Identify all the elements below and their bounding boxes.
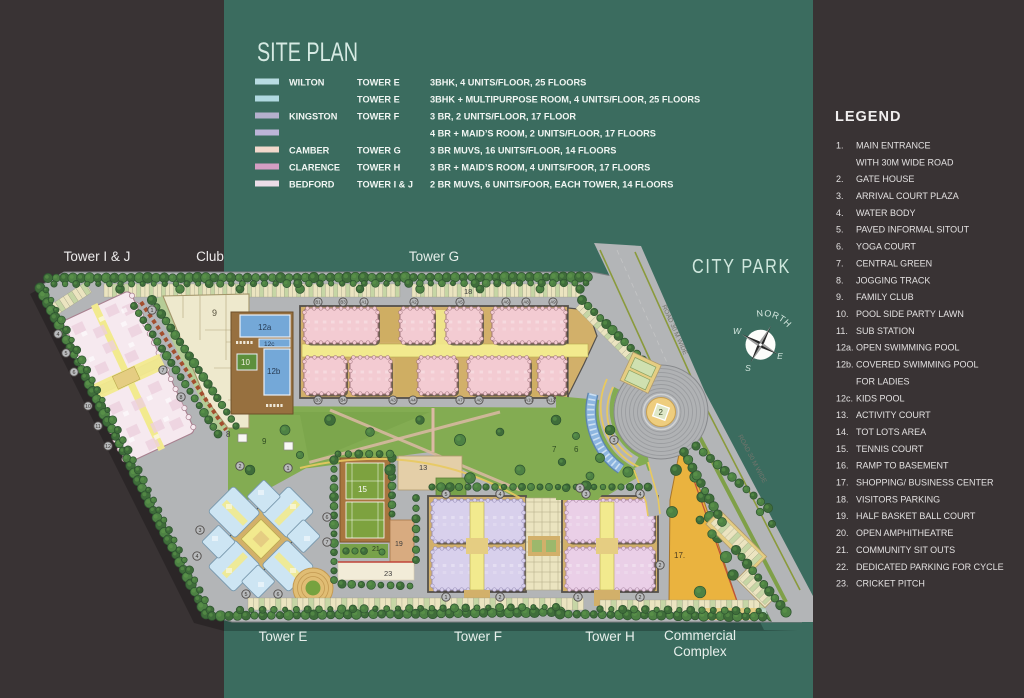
svg-text:11: 11 — [95, 424, 101, 430]
svg-text:B4: B4 — [340, 398, 346, 403]
svg-text:3: 3 — [199, 528, 202, 534]
svg-text:TOWER E: TOWER E — [357, 78, 400, 88]
svg-text:3 BR MUVS, 16 UNITS/FLOOR, 14: 3 BR MUVS, 16 UNITS/FLOOR, 14 FLOORS — [430, 146, 616, 156]
svg-text:COVERED SWIMMING POOL: COVERED SWIMMING POOL — [856, 360, 979, 370]
svg-text:WILTON: WILTON — [289, 78, 325, 88]
svg-text:S: S — [745, 363, 751, 373]
svg-text:LEGEND: LEGEND — [835, 109, 901, 125]
svg-text:6.: 6. — [836, 242, 844, 252]
svg-text:Complex: Complex — [673, 644, 727, 659]
svg-text:4: 4 — [57, 332, 60, 338]
svg-text:9: 9 — [212, 308, 217, 318]
svg-text:B3: B3 — [315, 398, 321, 403]
svg-text:OPEN AMPHITHEATRE: OPEN AMPHITHEATRE — [856, 528, 953, 538]
svg-text:17.: 17. — [674, 551, 685, 560]
svg-text:4: 4 — [196, 554, 199, 560]
svg-text:TOT LOTS AREA: TOT LOTS AREA — [856, 427, 926, 437]
svg-text:20.: 20. — [836, 528, 849, 538]
svg-text:3.: 3. — [836, 191, 844, 201]
svg-text:A5: A5 — [457, 300, 463, 305]
svg-text:11.: 11. — [836, 326, 848, 336]
svg-text:TOWER F: TOWER F — [357, 112, 400, 122]
svg-text:Tower E: Tower E — [259, 629, 308, 644]
svg-text:4 BR + MAID’S ROOM, 2 UNITS/FL: 4 BR + MAID’S ROOM, 2 UNITS/FLOOR, 17 FL… — [430, 129, 656, 139]
svg-text:PAVED INFORMAL SITOUT: PAVED INFORMAL SITOUT — [856, 225, 970, 235]
svg-text:17.: 17. — [836, 478, 849, 488]
svg-text:2 BR MUVS, 6 UNITS/FOOR, EACH: 2 BR MUVS, 6 UNITS/FOOR, EACH TOWER, 14 … — [430, 180, 673, 190]
svg-text:A6: A6 — [503, 300, 509, 305]
svg-text:Tower I & J: Tower I & J — [64, 249, 131, 264]
svg-text:B3: B3 — [340, 300, 346, 305]
svg-text:FOR LADIES: FOR LADIES — [856, 376, 910, 386]
svg-text:OPEN SWIMMING POOL: OPEN SWIMMING POOL — [856, 343, 960, 353]
svg-text:5.: 5. — [836, 225, 844, 235]
svg-text:A7: A7 — [457, 398, 463, 403]
svg-text:W: W — [733, 326, 742, 336]
svg-text:HALF BASKET BALL COURT: HALF BASKET BALL COURT — [856, 511, 976, 521]
svg-text:16.: 16. — [836, 461, 849, 471]
svg-text:19.: 19. — [836, 511, 849, 521]
svg-text:A8: A8 — [523, 300, 529, 305]
svg-text:A4: A4 — [410, 398, 416, 403]
svg-text:15: 15 — [358, 485, 367, 494]
svg-text:TOWER E: TOWER E — [357, 95, 400, 105]
svg-text:KIDS POOL: KIDS POOL — [856, 393, 905, 403]
svg-text:ARRIVAL COURT PLAZA: ARRIVAL COURT PLAZA — [856, 191, 959, 201]
svg-text:21.: 21. — [836, 545, 849, 555]
svg-text:CENTRAL GREEN: CENTRAL GREEN — [856, 258, 932, 268]
svg-text:SHOPPING/ BUSINESS CENTER: SHOPPING/ BUSINESS CENTER — [856, 478, 994, 488]
svg-text:CITY PARK: CITY PARK — [692, 256, 791, 278]
svg-text:3 BR, 2 UNITS/FLOOR, 17 FLOOR: 3 BR, 2 UNITS/FLOOR, 17 FLOOR — [430, 112, 576, 122]
svg-text:19: 19 — [395, 541, 403, 548]
svg-text:SITE PLAN: SITE PLAN — [257, 37, 358, 67]
svg-text:6: 6 — [326, 515, 329, 521]
svg-text:2: 2 — [639, 595, 642, 601]
svg-text:3BHK, 4 UNITS/FLOOR, 25 FLOORS: 3BHK, 4 UNITS/FLOOR, 25 FLOORS — [430, 78, 586, 88]
svg-text:3BHK + MULTIPURPOSE ROOM, 4 UN: 3BHK + MULTIPURPOSE ROOM, 4 UNITS/FLOOR,… — [430, 95, 700, 105]
svg-text:23.: 23. — [836, 579, 849, 589]
svg-text:4.: 4. — [836, 208, 844, 218]
svg-text:KINGSTON: KINGSTON — [289, 112, 338, 122]
svg-text:7: 7 — [162, 368, 165, 374]
svg-text:MAIN ENTRANCE: MAIN ENTRANCE — [856, 141, 931, 151]
svg-text:2: 2 — [239, 464, 242, 470]
svg-text:9: 9 — [262, 437, 267, 446]
svg-text:TOWER G: TOWER G — [357, 146, 401, 156]
svg-text:5: 5 — [245, 592, 248, 598]
svg-text:BEDFORD: BEDFORD — [289, 180, 335, 190]
svg-text:2: 2 — [659, 563, 662, 569]
svg-text:3: 3 — [585, 492, 588, 498]
svg-text:TOWER I & J: TOWER I & J — [357, 180, 413, 190]
svg-text:12b.: 12b. — [836, 360, 854, 370]
svg-text:18.: 18. — [836, 494, 849, 504]
svg-text:COMMUNITY SIT OUTS: COMMUNITY SIT OUTS — [856, 545, 955, 555]
svg-text:18: 18 — [464, 287, 472, 296]
svg-text:CRICKET PITCH: CRICKET PITCH — [856, 579, 925, 589]
svg-text:2.: 2. — [836, 174, 844, 184]
svg-text:8: 8 — [226, 430, 231, 439]
svg-text:6: 6 — [277, 592, 280, 598]
svg-text:CAMBER: CAMBER — [289, 146, 330, 156]
svg-text:12a: 12a — [258, 323, 272, 332]
svg-text:A10: A10 — [525, 398, 533, 403]
svg-text:4: 4 — [639, 492, 642, 498]
svg-text:3 BR + MAID’S ROOM, 4 UNITS/FO: 3 BR + MAID’S ROOM, 4 UNITS/FOOR, 17 FLO… — [430, 163, 650, 173]
svg-text:9: 9 — [579, 486, 582, 492]
svg-text:Tower H: Tower H — [585, 629, 635, 644]
svg-text:6: 6 — [574, 445, 579, 454]
svg-text:A2: A2 — [411, 300, 417, 305]
svg-text:22.: 22. — [836, 562, 849, 572]
svg-text:13: 13 — [419, 463, 427, 472]
svg-text:3: 3 — [613, 438, 616, 444]
svg-text:10: 10 — [85, 404, 91, 410]
svg-text:A8: A8 — [476, 398, 482, 403]
svg-text:1.: 1. — [836, 141, 844, 151]
svg-text:13.: 13. — [836, 410, 849, 420]
svg-text:JOGGING TRACK: JOGGING TRACK — [856, 275, 930, 285]
svg-text:10.: 10. — [836, 309, 849, 319]
svg-text:1: 1 — [445, 595, 448, 601]
svg-text:A9: A9 — [550, 300, 556, 305]
svg-text:15.: 15. — [836, 444, 849, 454]
svg-text:1: 1 — [287, 466, 290, 472]
svg-text:RAMP TO BASEMENT: RAMP TO BASEMENT — [856, 461, 949, 471]
svg-text:ACTIVITY COURT: ACTIVITY COURT — [856, 410, 931, 420]
svg-text:POOL SIDE PARTY LAWN: POOL SIDE PARTY LAWN — [856, 309, 964, 319]
svg-text:A1: A1 — [361, 300, 367, 305]
svg-text:8: 8 — [180, 395, 183, 401]
svg-text:1: 1 — [577, 595, 580, 601]
svg-text:Tower G: Tower G — [409, 249, 459, 264]
svg-text:DEDICATED PARKING FOR CYCLE: DEDICATED PARKING FOR CYCLE — [856, 562, 1004, 572]
svg-text:WATER BODY: WATER BODY — [856, 208, 916, 218]
svg-text:FAMILY CLUB: FAMILY CLUB — [856, 292, 914, 302]
svg-text:A12: A12 — [547, 398, 555, 403]
svg-text:7.: 7. — [836, 258, 844, 268]
svg-text:Tower F: Tower F — [454, 629, 502, 644]
svg-text:2: 2 — [659, 408, 664, 417]
svg-text:E: E — [777, 351, 783, 361]
svg-text:A3: A3 — [390, 398, 396, 403]
svg-text:CLARENCE: CLARENCE — [289, 163, 340, 173]
svg-text:23: 23 — [384, 569, 392, 578]
svg-text:10: 10 — [241, 358, 250, 367]
svg-text:TOWER H: TOWER H — [357, 163, 401, 173]
svg-text:9.: 9. — [836, 292, 844, 302]
svg-text:6: 6 — [73, 370, 76, 376]
svg-text:12b: 12b — [267, 367, 281, 376]
svg-text:5: 5 — [65, 351, 68, 357]
svg-text:4: 4 — [499, 492, 502, 498]
svg-text:GATE HOUSE: GATE HOUSE — [856, 174, 914, 184]
svg-text:Commercial: Commercial — [664, 628, 736, 643]
svg-text:5: 5 — [445, 492, 448, 498]
svg-text:SUB STATION: SUB STATION — [856, 326, 915, 336]
svg-text:B1: B1 — [315, 300, 321, 305]
svg-text:12: 12 — [105, 444, 111, 450]
svg-text:1: 1 — [151, 308, 154, 314]
svg-text:14.: 14. — [836, 427, 849, 437]
svg-text:Club: Club — [196, 249, 224, 264]
svg-text:8.: 8. — [836, 275, 844, 285]
svg-text:YOGA COURT: YOGA COURT — [856, 242, 916, 252]
svg-text:TENNIS COURT: TENNIS COURT — [856, 444, 924, 454]
svg-text:12c.: 12c. — [836, 393, 853, 403]
svg-text:7: 7 — [326, 540, 329, 546]
svg-text:VISITORS PARKING: VISITORS PARKING — [856, 494, 940, 504]
svg-text:12c: 12c — [264, 341, 275, 348]
svg-text:12a.: 12a. — [836, 343, 854, 353]
svg-text:WITH 30M WIDE ROAD: WITH 30M WIDE ROAD — [856, 157, 954, 167]
svg-text:2: 2 — [499, 595, 502, 601]
